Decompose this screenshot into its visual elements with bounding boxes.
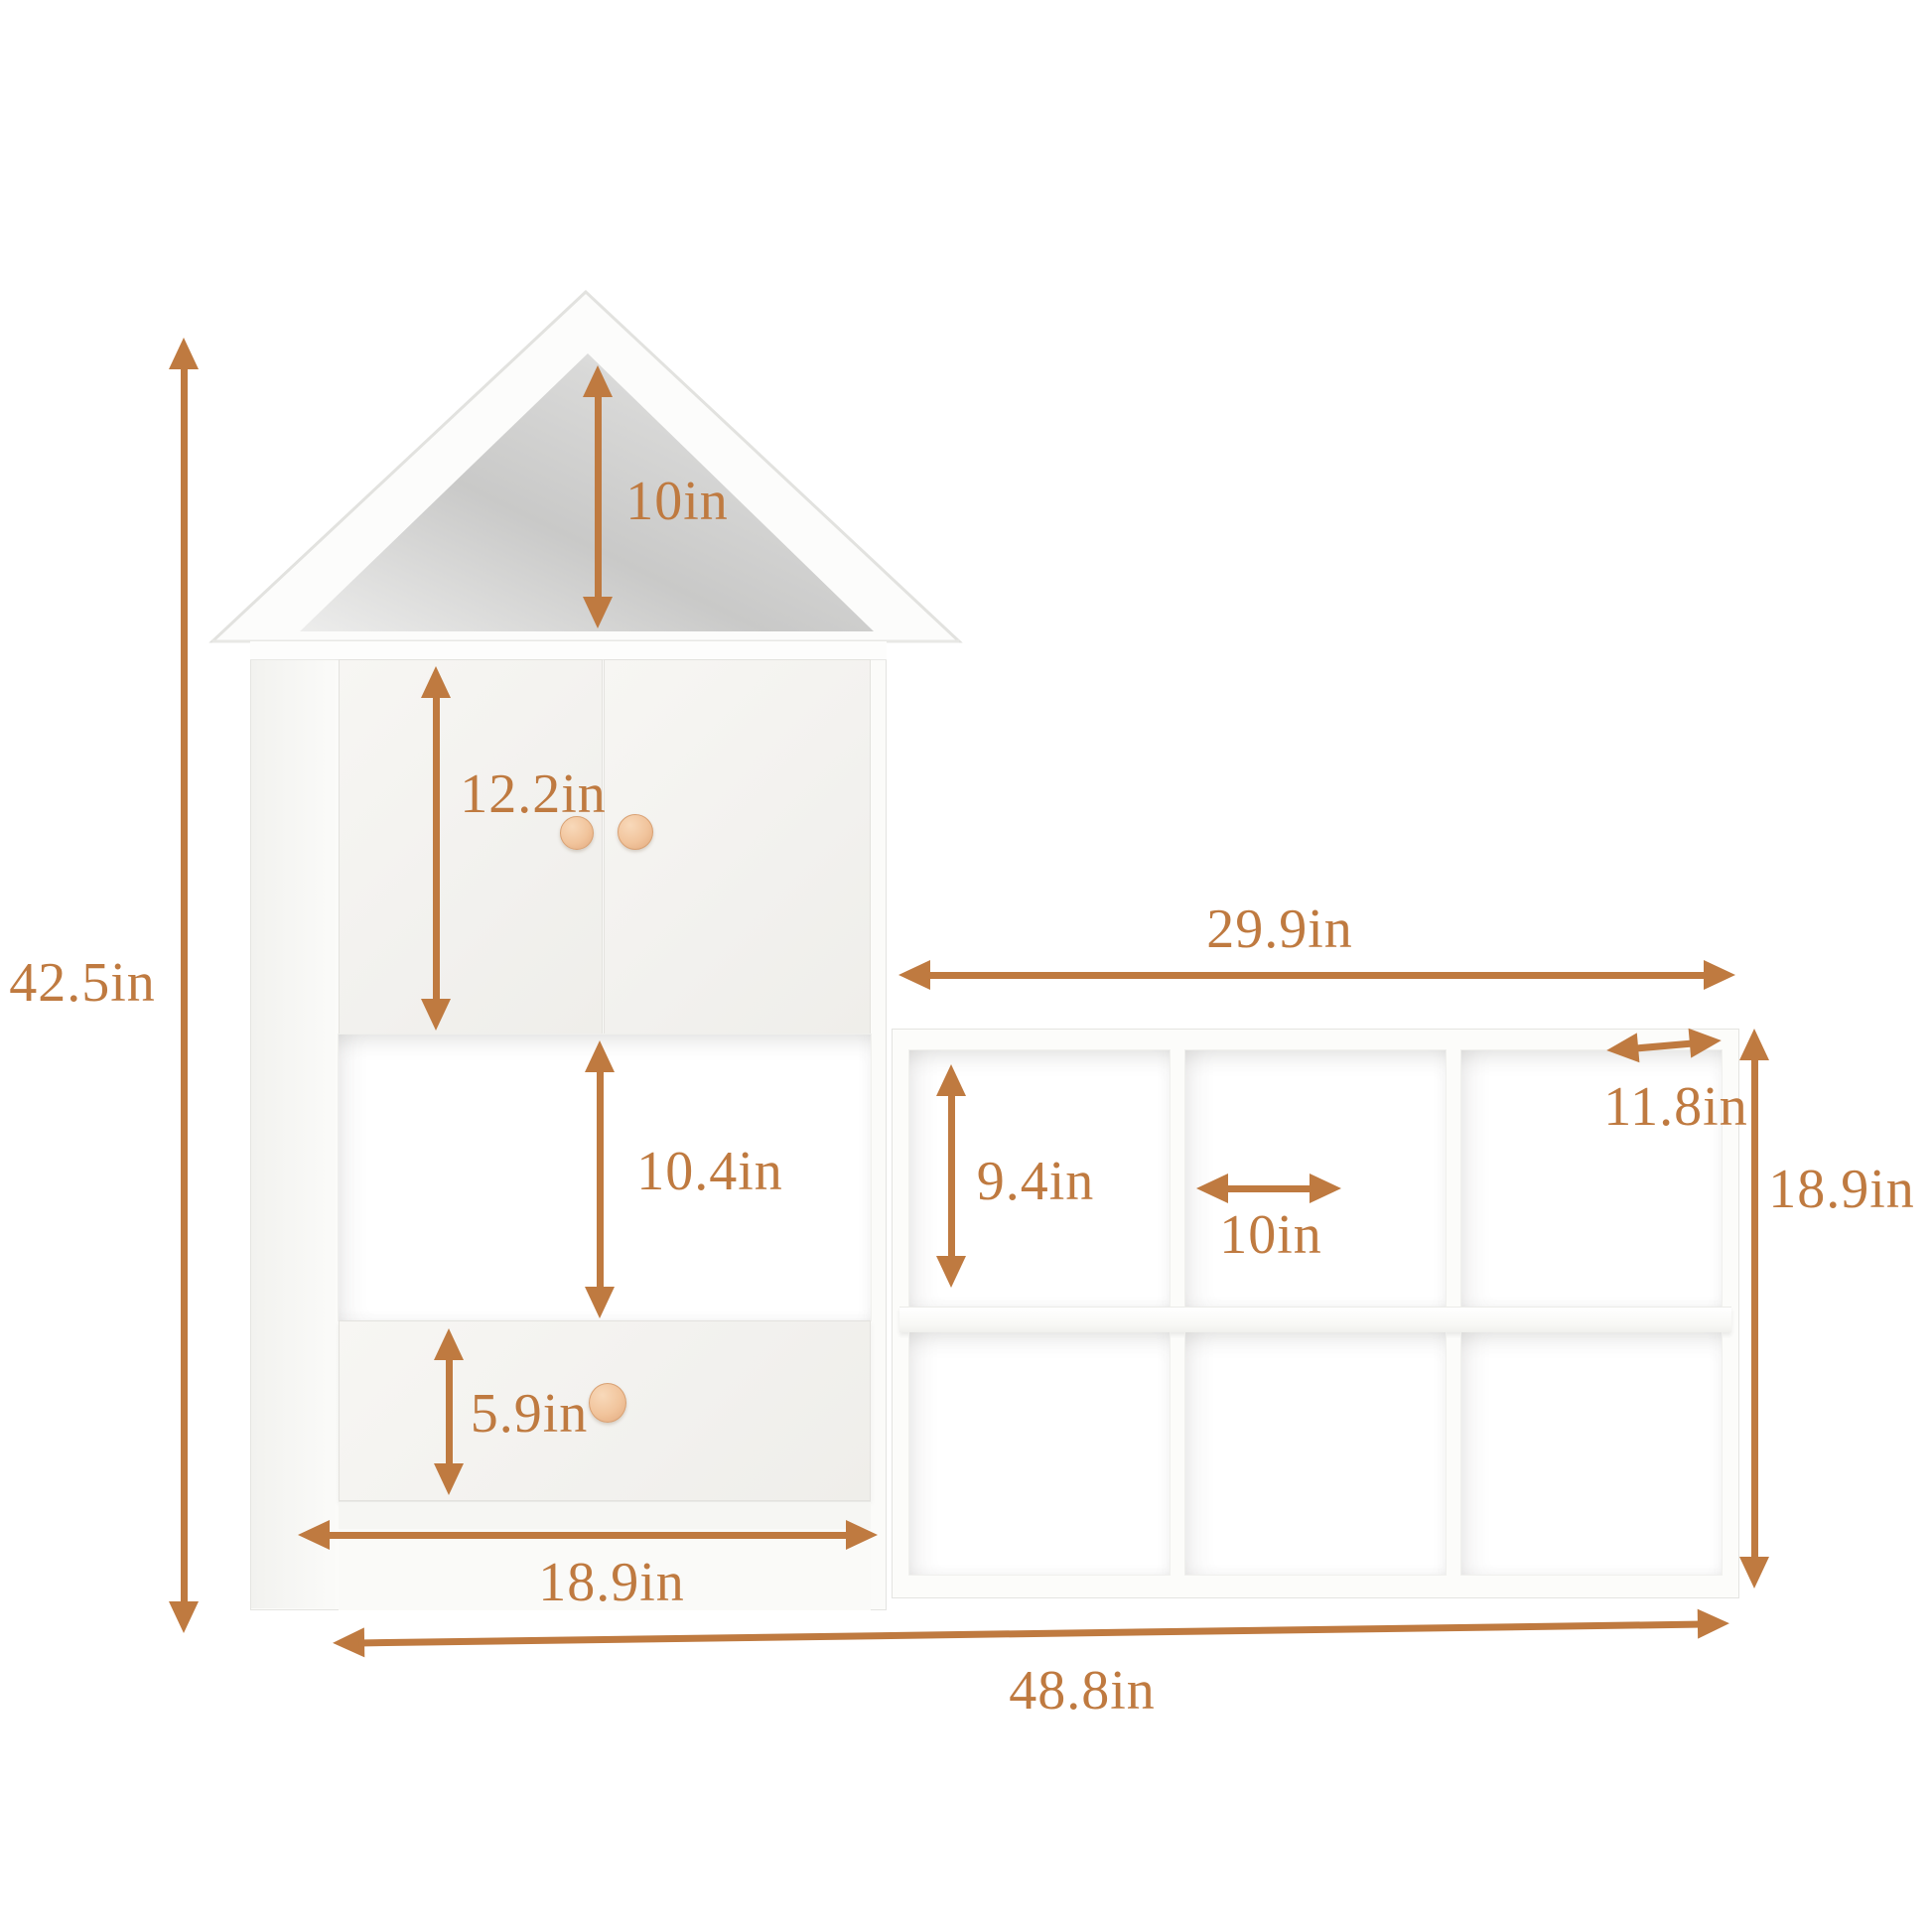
arrow-cube-cell-height bbox=[934, 1064, 968, 1288]
drawer-knob bbox=[589, 1383, 626, 1423]
label-drawer-height: 5.9in bbox=[471, 1386, 589, 1442]
arrow-drawer-height bbox=[432, 1328, 466, 1495]
arrow-roof-height bbox=[581, 365, 615, 628]
label-cube-unit-width: 29.9in bbox=[1206, 901, 1353, 957]
cube-cell-bottom-1 bbox=[909, 1332, 1170, 1575]
cube-middle-shelf bbox=[899, 1307, 1731, 1332]
arrow-cube-unit-height bbox=[1737, 1029, 1771, 1588]
arrow-door-height bbox=[419, 666, 453, 1031]
arrow-total-height bbox=[167, 338, 201, 1633]
door-knob-right bbox=[618, 814, 653, 850]
cube-cell-bottom-2 bbox=[1185, 1332, 1446, 1575]
cube-cell-bottom-3 bbox=[1461, 1332, 1722, 1575]
label-cube-unit-height: 18.9in bbox=[1768, 1162, 1915, 1217]
label-cube-cell-width: 10in bbox=[1219, 1207, 1322, 1263]
label-roof-height: 10in bbox=[625, 474, 729, 529]
tower-left-side-panel bbox=[251, 642, 340, 1608]
dimension-diagram: 42.5in 10in 12.2in 10.4in 5.9in 18.9in 4… bbox=[0, 0, 1932, 1932]
arrow-cube-cell-width bbox=[1196, 1172, 1341, 1205]
arrow-open-shelf-height bbox=[583, 1040, 617, 1318]
label-overall-width: 48.8in bbox=[1009, 1663, 1156, 1719]
arrow-cube-unit-width bbox=[898, 958, 1735, 992]
label-tower-width: 18.9in bbox=[538, 1555, 685, 1610]
label-open-shelf-height: 10.4in bbox=[636, 1144, 783, 1199]
label-door-height: 12.2in bbox=[460, 766, 607, 822]
tower-top-board bbox=[250, 641, 887, 660]
arrow-tower-width bbox=[298, 1518, 878, 1552]
label-cube-unit-depth: 11.8in bbox=[1603, 1079, 1747, 1135]
cabinet-door-left bbox=[339, 659, 603, 1035]
label-cube-cell-height: 9.4in bbox=[977, 1154, 1095, 1209]
label-total-height: 42.5in bbox=[9, 955, 156, 1011]
